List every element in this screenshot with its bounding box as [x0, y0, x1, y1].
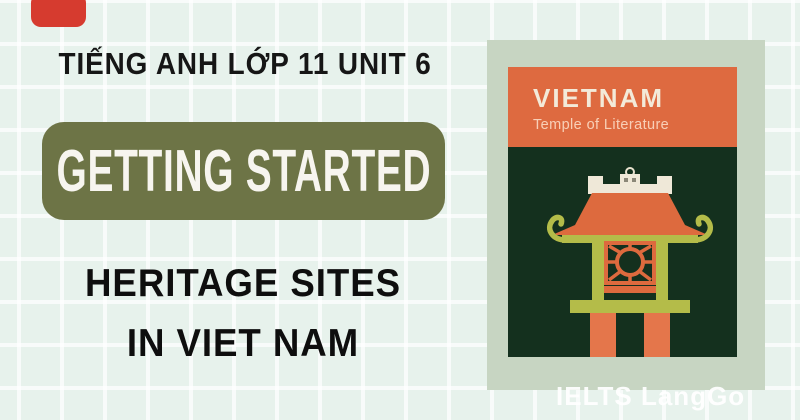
- unit-heading: TIẾNG ANH LỚP 11 UNIT 6: [59, 46, 428, 82]
- lesson-banner: TIẾNG ANH LỚP 11 UNIT 6 GETTING STARTED …: [0, 0, 800, 420]
- temple-lower-roof: [552, 225, 708, 235]
- lesson-title: HERITAGE SITES IN VIET NAM: [38, 254, 448, 374]
- left-text-column: TIẾNG ANH LỚP 11 UNIT 6 GETTING STARTED …: [38, 0, 448, 82]
- stamp-country-label: VIETNAM: [533, 83, 737, 114]
- stamp-site-label: Temple of Literature: [533, 117, 737, 133]
- stamp-card: VIETNAM Temple of Literature: [508, 67, 737, 357]
- temple-legs: [590, 313, 670, 357]
- temple-upper-roof: [575, 193, 685, 225]
- temple-window-sill: [604, 286, 656, 293]
- stamp-card-body: [508, 147, 737, 357]
- temple-lattice-window: [606, 243, 654, 283]
- temple-illustration: [508, 147, 737, 357]
- stamp-card-header: VIETNAM Temple of Literature: [508, 67, 737, 147]
- badge-label: GETTING STARTED: [56, 137, 431, 205]
- brand-logo: IELTS LangGo: [556, 381, 745, 412]
- getting-started-badge: GETTING STARTED: [42, 122, 445, 220]
- temple-parapet: [588, 174, 672, 194]
- vietnam-stamp: VIETNAM Temple of Literature: [487, 40, 765, 390]
- lesson-title-line1: HERITAGE SITES: [50, 254, 435, 314]
- lesson-title-line2: IN VIET NAM: [50, 314, 435, 374]
- temple-crossbar: [570, 300, 690, 313]
